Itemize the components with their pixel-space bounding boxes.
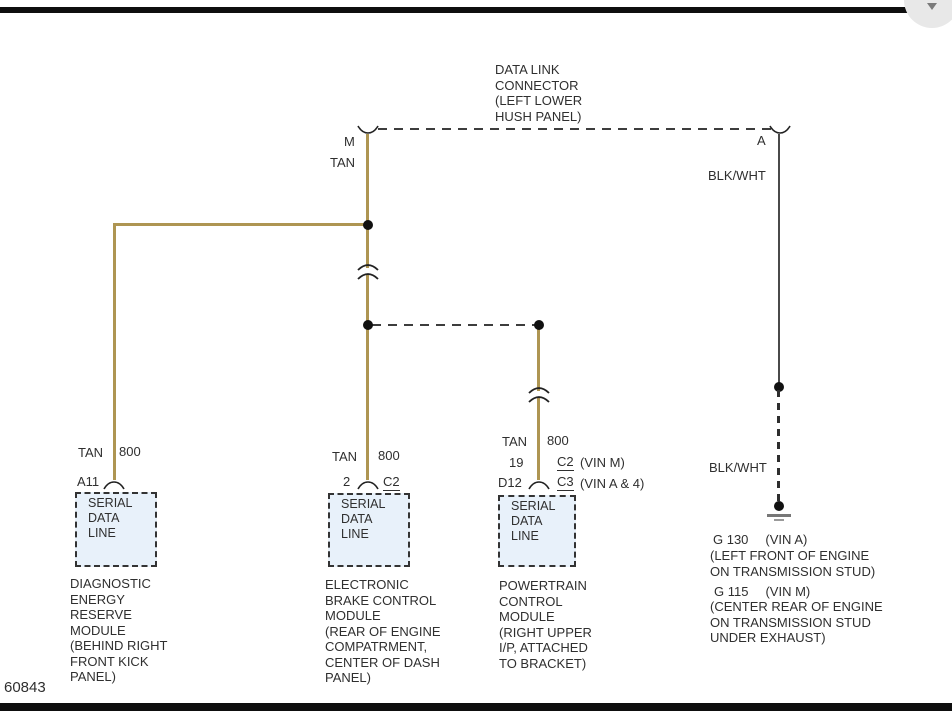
pcm-name: POWERTRAIN CONTROL MODULE (RIGHT UPPER I… bbox=[499, 578, 592, 671]
pcm-connector-vina: C3 bbox=[557, 474, 574, 491]
pcm-wire-color: TAN bbox=[502, 434, 527, 450]
junction-dot bbox=[534, 320, 544, 330]
pcm-pin-vina: D12 bbox=[498, 475, 522, 491]
derm-serial-data-box: SERIAL DATA LINE bbox=[75, 492, 157, 567]
pcm-circuit-number: 800 bbox=[547, 433, 569, 449]
ground-bar bbox=[767, 514, 791, 517]
ground-g115-id: G 115 bbox=[714, 584, 748, 600]
ground-bar bbox=[774, 519, 784, 521]
ebcm-serial-data-box: SERIAL DATA LINE bbox=[328, 493, 410, 567]
pcm-vinm-note: (VIN M) bbox=[580, 455, 625, 471]
pcm-connector-id: C3 bbox=[557, 474, 574, 491]
derm-circuit-number: 800 bbox=[119, 444, 141, 460]
dlc-pin-m: M bbox=[344, 134, 355, 150]
blkwht-wire-label: BLK/WHT bbox=[708, 168, 766, 184]
ground-g130-row: G 130 (VIN A) bbox=[713, 532, 807, 548]
wire-break-icon bbox=[526, 383, 552, 405]
ebcm-connector: C2 bbox=[383, 474, 400, 491]
connector-pin-icon bbox=[103, 479, 125, 491]
blkwht-wire-label-lower: BLK/WHT bbox=[709, 460, 767, 476]
tan-wire-label: TAN bbox=[330, 155, 355, 171]
diagram-ref-number: 60843 bbox=[4, 680, 46, 696]
ebcm-wire-color: TAN bbox=[332, 449, 357, 465]
ebcm-circuit-number: 800 bbox=[378, 448, 400, 464]
pcm-vina-note: (VIN A & 4) bbox=[580, 476, 644, 492]
tan-wire-left-branch bbox=[113, 223, 368, 226]
pcm-serial-data-box: SERIAL DATA LINE bbox=[498, 495, 576, 567]
ground-g130-location: (LEFT FRONT OF ENGINE ON TRANSMISSION ST… bbox=[710, 548, 875, 579]
connector-pin-icon bbox=[528, 479, 550, 491]
ground-dot bbox=[774, 501, 784, 511]
ground-g130-id: G 130 bbox=[713, 532, 748, 548]
ground-g115-location: (CENTER REAR OF ENGINE ON TRANSMISSION S… bbox=[710, 599, 883, 646]
ground-g115-row: G 115 (VIN M) bbox=[714, 584, 810, 600]
blkwht-wire-dashed bbox=[777, 390, 780, 502]
connector-pin-icon bbox=[357, 479, 379, 491]
blkwht-wire-solid bbox=[778, 134, 780, 386]
ground-g130-vin: (VIN A) bbox=[765, 532, 807, 548]
ebcm-name: ELECTRONIC BRAKE CONTROL MODULE (REAR OF… bbox=[325, 577, 441, 686]
diagram-page: DATA LINK CONNECTOR (LEFT LOWER HUSH PAN… bbox=[0, 0, 952, 722]
derm-name: DIAGNOSTIC ENERGY RESERVE MODULE (BEHIND… bbox=[70, 576, 168, 685]
junction-dot bbox=[363, 220, 373, 230]
ground-g115-vin: (VIN M) bbox=[765, 584, 810, 600]
ebcm-connector-id: C2 bbox=[383, 474, 400, 491]
junction-dot bbox=[363, 320, 373, 330]
tan-wire-derm-drop bbox=[113, 223, 116, 480]
connector-pin-icon bbox=[769, 124, 791, 136]
wire-break-icon bbox=[355, 260, 381, 282]
dlc-label: DATA LINK CONNECTOR (LEFT LOWER HUSH PAN… bbox=[495, 62, 582, 124]
bottom-border-bar bbox=[0, 703, 952, 711]
tan-wire-main bbox=[366, 134, 369, 480]
dashed-link-to-pcm bbox=[372, 324, 535, 326]
ebcm-pin: 2 bbox=[343, 474, 350, 490]
pcm-connector-vinm: C2 bbox=[557, 454, 574, 471]
pcm-pin-vinm: 19 bbox=[509, 455, 523, 471]
derm-pin: A11 bbox=[77, 474, 99, 490]
derm-wire-color: TAN bbox=[78, 445, 103, 461]
scroll-top-button[interactable] bbox=[904, 0, 952, 28]
top-border-bar bbox=[0, 7, 952, 13]
dlc-dashed-line bbox=[378, 128, 772, 130]
chevron-down-icon bbox=[927, 3, 937, 10]
dlc-pin-a: A bbox=[757, 133, 766, 149]
pcm-connector-id: C2 bbox=[557, 454, 574, 471]
